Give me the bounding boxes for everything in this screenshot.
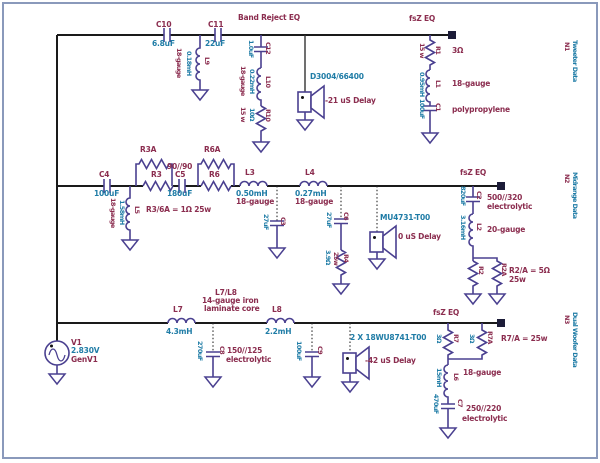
- ground-icon: [269, 248, 285, 258]
- band-reject-eq-label: Band Reject EQ: [238, 14, 300, 22]
- l5-value-label: 1.58mH: [118, 200, 125, 225]
- net-n2-id-label: N2: [563, 174, 570, 183]
- voltage-source-sine-wave: [49, 349, 65, 361]
- l7-ref-label: L7: [173, 306, 183, 314]
- net-terminal-N2: [497, 182, 505, 190]
- l4-ref-label: L4: [305, 169, 315, 177]
- inductor-L3: [240, 182, 267, 187]
- l3-note-label: 18-gauge: [236, 198, 274, 206]
- net-n3-id-label: N3: [563, 315, 570, 324]
- woofer-fsz-eq-label: fsZ EQ: [433, 309, 459, 317]
- tweeter-driver-model-label: D3004/66400: [310, 73, 364, 81]
- c4-value-label: 100uF: [94, 190, 119, 198]
- c2-ref-label: C2: [475, 191, 482, 199]
- ground-icon: [253, 142, 269, 152]
- c7-note2-label: electrolytic: [462, 415, 507, 423]
- midrange-fsz-eq-label: fsZ EQ: [460, 169, 486, 177]
- c1-ref-label: C1: [434, 103, 441, 111]
- l1-note-label: 18-gauge: [452, 80, 490, 88]
- c11-ref-label: C11: [208, 21, 223, 29]
- l3-ref-label: L3: [245, 169, 255, 177]
- c9-value-label: 100uF: [295, 341, 302, 361]
- woofer-driver-delay-label: -42 uS Delay: [365, 357, 416, 365]
- c7-ref-label: C7: [456, 399, 463, 407]
- v1-name-label: GenV1: [71, 356, 98, 364]
- ground-icon: [440, 428, 456, 438]
- l4-note-label: 18-gauge: [295, 198, 333, 206]
- r7a-value-label: 3Ω: [468, 334, 475, 343]
- v1-voltage-label: 2.830V: [71, 347, 99, 355]
- midrange-polarity-dot: [373, 236, 376, 239]
- capacitor-C7: [441, 404, 455, 428]
- tweeter-speaker-horn: [311, 86, 324, 118]
- c8-note2-label: electrolytic: [226, 356, 271, 364]
- r4-value-label: 3.9Ω: [324, 250, 331, 265]
- c2-note2-label: electrolytic: [487, 203, 532, 211]
- resistor-R6: [201, 182, 231, 191]
- ground-icon: [297, 120, 313, 130]
- woofer-polarity-dot: [346, 357, 349, 360]
- capacitor-C6: [334, 219, 348, 250]
- r1-value-label: 3Ω: [452, 47, 463, 55]
- net-n3-name-label: Dual Woofer Data: [571, 312, 578, 367]
- r7-ref-label: R7: [452, 334, 459, 342]
- tweeter-polarity-dot: [301, 96, 304, 99]
- net-n1-id-label: N1: [563, 42, 570, 51]
- c12-ref-label: C12: [264, 42, 271, 54]
- l8-ref-label: L8: [272, 306, 282, 314]
- c6-ref-label: C6: [342, 212, 349, 220]
- r3-ref-label: R3: [151, 171, 162, 179]
- net-n1-name-label: Tweeter Data: [571, 40, 578, 82]
- c7-note1-label: 250//220: [466, 405, 501, 413]
- ground-icon: [342, 382, 358, 392]
- ground-icon: [422, 133, 438, 143]
- source-polarity-dot: [50, 345, 53, 348]
- r7-note-label: R7/A = 25w: [501, 335, 547, 343]
- l9-ref-label: L9: [203, 57, 210, 64]
- dotted-connection-wires: [213, 186, 377, 353]
- ground-icon: [192, 90, 208, 100]
- crossover-schematic: C10 6.8uF C11 22uF Band Reject EQ 18-gau…: [0, 0, 600, 463]
- l1-ref-label: L1: [434, 80, 441, 87]
- c1-value-label: 100uF: [418, 99, 425, 119]
- r2-note1-label: R2/A = 5Ω: [509, 267, 550, 275]
- c8-note1-label: 150//125: [227, 347, 262, 355]
- inductor-L1: [426, 70, 430, 106]
- tweeter-driver-delay-label: -21 uS Delay: [325, 97, 376, 105]
- midrange-speaker-horn: [383, 226, 396, 258]
- main-bus-wires: [57, 35, 497, 341]
- r1-ref-label: R1: [434, 46, 441, 54]
- midrange-driver-delay-label: 0 uS Delay: [398, 233, 441, 241]
- c2-note1-label: 500//320: [487, 194, 522, 202]
- r7a-ref-label: R7A: [486, 331, 493, 344]
- c10-ref-label: C10: [156, 21, 171, 29]
- ground-icon: [489, 294, 505, 304]
- inductor-L9: [196, 35, 200, 90]
- c6-value-label: 27uF: [325, 212, 332, 228]
- r1-note-label: 15 w: [418, 43, 425, 58]
- c3-value-label: 27uF: [262, 214, 269, 230]
- l6-note-label: 18-gauge: [463, 369, 501, 377]
- inductor-L7: [168, 319, 195, 324]
- c5-value-label: 180uF: [167, 190, 192, 198]
- ground-icon: [49, 374, 65, 384]
- midrange-speaker-icon: [370, 232, 383, 252]
- tweeter-fsz-eq-label: fsZ EQ: [409, 15, 435, 23]
- net-n2-name-label: Midrange Data: [571, 172, 578, 218]
- c8-value-label: 270uF: [196, 341, 203, 361]
- c11-value-label: 22uF: [205, 40, 225, 48]
- inductor-L10: [257, 68, 261, 106]
- component-symbols: [45, 28, 502, 428]
- ground-icon: [369, 259, 385, 269]
- r2-ref-label: R2: [477, 266, 484, 274]
- net-terminal-N3: [497, 319, 505, 327]
- l5-note-label: 18-gauge: [109, 198, 116, 228]
- l10-note-label: 18-gauge: [239, 66, 246, 96]
- ground-icon: [205, 377, 221, 387]
- woofer-driver-model-label: 2 X 18WU8741-T00: [350, 334, 426, 342]
- inductor-L8: [267, 319, 294, 324]
- capacitor-C8: [206, 352, 220, 377]
- c8-ref-label: C8: [218, 346, 225, 354]
- polarity-dots: [50, 96, 376, 360]
- inductor-L6: [444, 365, 448, 404]
- r6-ref-label: R6: [209, 171, 220, 179]
- r2a-ref-label: R2A: [500, 263, 507, 276]
- ground-icon: [333, 284, 349, 294]
- r10-value-label: 10Ω: [248, 108, 255, 121]
- c4-ref-label: C4: [99, 171, 109, 179]
- ground-icon: [122, 240, 138, 250]
- tweeter-speaker-icon: [298, 92, 311, 112]
- l1-value-label: 0.95mH: [418, 72, 425, 97]
- r3a-ref-label: R3A: [140, 146, 156, 154]
- l9-value-label: 0.18mH: [185, 51, 192, 76]
- r10-note-label: 15 w: [239, 107, 246, 122]
- c10-value-label: 6.8uF: [152, 40, 175, 48]
- r4-note-label: 25w: [332, 252, 339, 265]
- c5-ref-label: C5: [175, 171, 185, 179]
- ground-icon: [304, 377, 320, 387]
- c9-ref-label: C9: [316, 346, 323, 354]
- capacitor-C9: [305, 352, 319, 377]
- c3-ref-label: C3: [279, 217, 286, 225]
- r2-note2-label: 25w: [509, 276, 526, 284]
- c7-value-label: 470uF: [432, 394, 439, 414]
- l5-ref-label: L5: [133, 206, 140, 213]
- inductor-L2: [469, 214, 473, 261]
- c2-value-label: 820uF: [459, 186, 466, 206]
- r6a-ref-label: R6A: [204, 146, 220, 154]
- l2-value-label: 3.16mH: [459, 215, 466, 240]
- l2-ref-label: L2: [475, 223, 482, 230]
- inductor-L4: [300, 182, 327, 187]
- l2-note-label: 20-gauge: [487, 226, 525, 234]
- resistor-note-label: R3/6A = 1Ω 25w: [146, 206, 211, 214]
- l10-ref-label: L10: [264, 76, 271, 87]
- l8-value-label: 2.2mH: [265, 328, 291, 336]
- ground-icon: [465, 294, 481, 304]
- net-terminal-N1: [448, 31, 456, 39]
- r4-ref-label: R4: [342, 254, 349, 262]
- inductor-L5: [126, 186, 130, 240]
- coil-note3-label: laminate core: [204, 305, 260, 313]
- woofer-speaker-icon: [343, 353, 356, 373]
- l6-value-label: 15mH: [435, 368, 442, 387]
- c1-note-label: polypropylene: [452, 106, 510, 114]
- l7-value-label: 4.3mH: [166, 328, 192, 336]
- l6-ref-label: L6: [452, 373, 459, 380]
- r7-value-label: 3Ω: [435, 334, 442, 343]
- midrange-driver-model-label: MU4731-T00: [380, 214, 430, 222]
- l10-value-label: 0.22mH: [248, 69, 255, 94]
- c12-value-label: 1.0uF: [247, 40, 254, 58]
- l9-note-label: 18-gauge: [175, 48, 182, 78]
- r10-ref-label: R10: [264, 109, 271, 121]
